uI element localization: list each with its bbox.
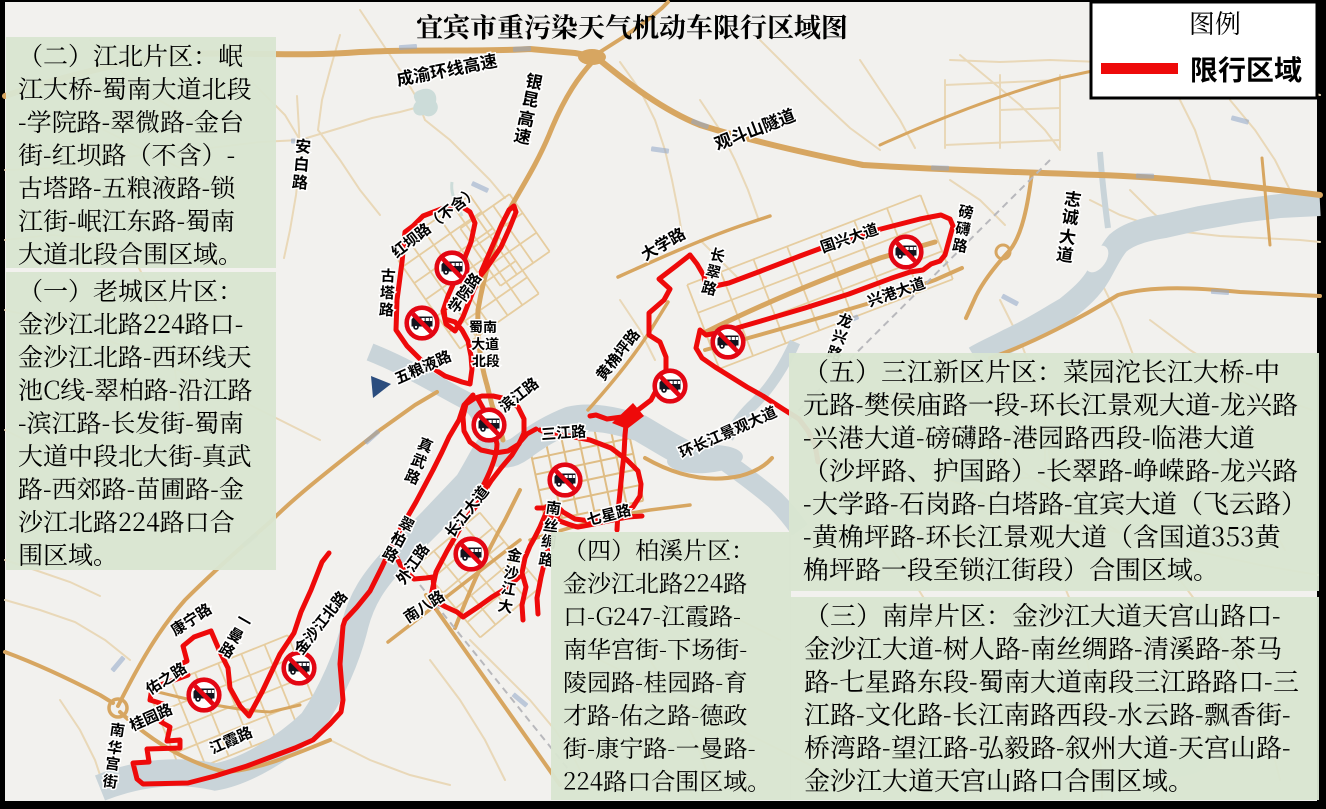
svg-text:桥湾路-望江路-弘毅路-叙州大道-天宫山路-: 桥湾路-望江路-弘毅路-叙州大道-天宫山路- <box>804 728 1291 765</box>
svg-text:（二）江北片区：岷: （二）江北片区：岷 <box>18 37 243 73</box>
svg-text:沙江北路224路口合: 沙江北路224路口合 <box>18 503 235 539</box>
svg-text:大道中段北大街-真武: 大道中段北大街-真武 <box>18 437 252 473</box>
svg-text:陵园路-桂园路-育: 陵园路-桂园路-育 <box>563 663 748 698</box>
svg-text:图例: 图例 <box>1189 4 1241 41</box>
svg-text:金沙江大道天宫山路口合围区域。: 金沙江大道天宫山路口合围区域。 <box>804 761 1194 798</box>
svg-text:江街-岷江东路-蜀南: 江街-岷江东路-蜀南 <box>18 202 235 238</box>
svg-text:蜀南大道北段: 蜀南大道北段 <box>469 317 500 371</box>
svg-text:金沙江北路224路: 金沙江北路224路 <box>563 564 747 599</box>
svg-text:围区域。: 围区域。 <box>18 536 118 572</box>
svg-text:-兴港大道-磅礴路-港园路西段-临港大道: -兴港大道-磅礴路-港园路西段-临港大道 <box>803 418 1255 455</box>
svg-text:-滨江路-长发街-蜀南: -滨江路-长发街-蜀南 <box>18 404 244 440</box>
svg-text:街-红坝路（不含）-: 街-红坝路（不含）- <box>18 136 235 172</box>
svg-text:大道北段合围区域。: 大道北段合围区域。 <box>18 235 243 271</box>
svg-text:江路-文化路-长江南路西段-水云路-飘香街-: 江路-文化路-长江南路西段-水云路-飘香街- <box>804 695 1291 732</box>
svg-text:桷坪路一段至锁江街段）合围区域。: 桷坪路一段至锁江街段）合围区域。 <box>803 550 1219 587</box>
svg-text:（五）三江新区片区：菜园沱长江大桥-中: （五）三江新区片区：菜园沱长江大桥-中 <box>803 352 1280 389</box>
svg-text:古塔路: 古塔路 <box>378 265 396 321</box>
svg-text:限行区域: 限行区域 <box>1190 49 1302 89</box>
svg-text:元路-樊侯庙路一段-环长江景观大道-龙兴路: 元路-樊侯庙路一段-环长江景观大道-龙兴路 <box>803 385 1298 422</box>
svg-text:三江路: 三江路 <box>540 420 586 444</box>
svg-text:-黄桷坪路-环长江景观大道（含国道353黄: -黄桷坪路-环长江景观大道（含国道353黄 <box>803 517 1280 554</box>
svg-text:金沙江大道-树人路-南丝绸路-清溪路-茶马: 金沙江大道-树人路-南丝绸路-清溪路-茶马 <box>804 629 1282 666</box>
svg-text:-学院路-翠微路-金台: -学院路-翠微路-金台 <box>18 103 244 139</box>
svg-text:（沙坪路、护国路）-长翠路-峥嵘路-龙兴路: （沙坪路、护国路）-长翠路-峥嵘路-龙兴路 <box>803 451 1298 488</box>
svg-text:（四）柏溪片区：: （四）柏溪片区： <box>563 531 755 566</box>
svg-text:金沙江北路-西环线天: 金沙江北路-西环线天 <box>18 338 252 374</box>
svg-text:224路口合围区域。: 224路口合围区域。 <box>563 762 771 797</box>
svg-text:路-七星路东段-蜀南大道南段三江路路口-三: 路-七星路东段-蜀南大道南段三江路路口-三 <box>804 662 1299 699</box>
svg-text:江大桥-蜀南大道北段: 江大桥-蜀南大道北段 <box>18 70 252 106</box>
svg-text:-大学路-石岗路-白塔路-宜宾大道（飞云路）: -大学路-石岗路-白塔路-宜宾大道（飞云路） <box>803 484 1307 521</box>
svg-text:宜宾市重污染天气机动车限行区域图: 宜宾市重污染天气机动车限行区域图 <box>416 6 848 45</box>
svg-text:口-G247-江霞路-: 口-G247-江霞路- <box>563 597 741 632</box>
svg-text:（三）南岸片区：金沙江大道天宫山路口-: （三）南岸片区：金沙江大道天宫山路口- <box>804 596 1281 633</box>
svg-text:池C线-翠柏路-沿江路: 池C线-翠柏路-沿江路 <box>18 371 253 407</box>
svg-text:古塔路-五粮液路-锁: 古塔路-五粮液路-锁 <box>18 169 235 205</box>
svg-text:街-康宁路-一曼路-: 街-康宁路-一曼路- <box>563 729 756 764</box>
svg-text:金沙江北路224路口-: 金沙江北路224路口- <box>18 305 243 341</box>
svg-text:南华宫街-下场街-: 南华宫街-下场街- <box>563 630 748 665</box>
svg-text:路-西郊路-苗圃路-金: 路-西郊路-苗圃路-金 <box>18 470 244 506</box>
svg-text:（一）老城区片区：: （一）老城区片区： <box>18 272 243 308</box>
svg-text:才路-佑之路-德政: 才路-佑之路-德政 <box>563 696 748 731</box>
